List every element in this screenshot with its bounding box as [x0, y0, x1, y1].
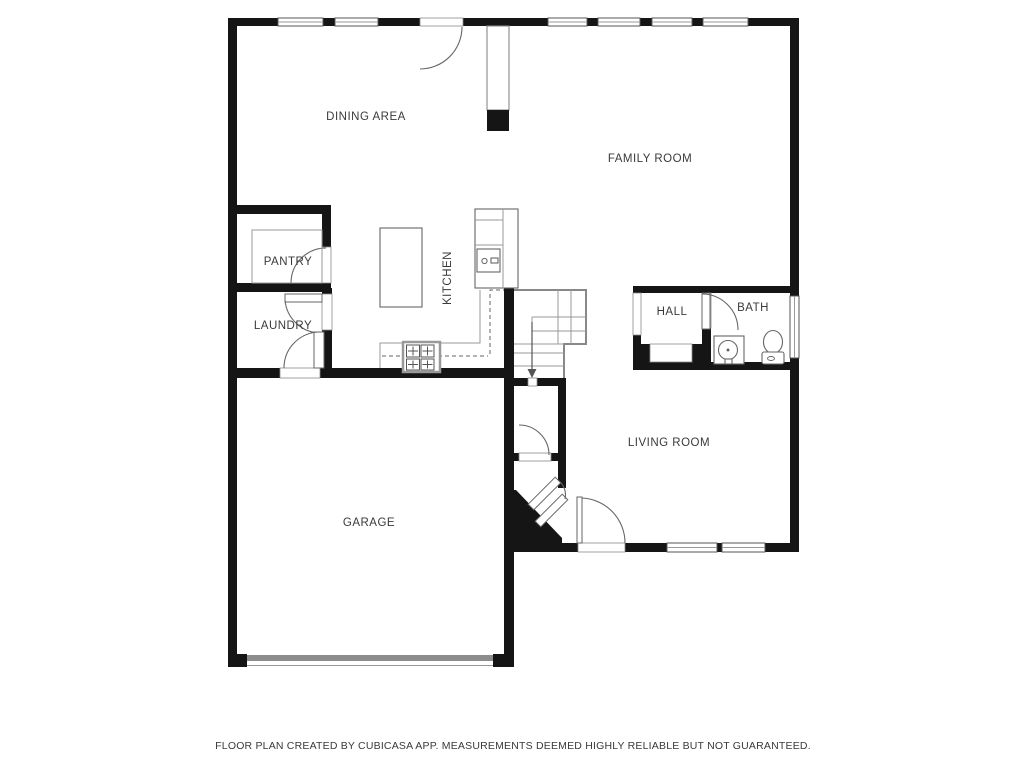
- toilet: [762, 331, 784, 365]
- room-label-living: LIVING ROOM: [628, 437, 710, 449]
- door-laundry-garage: [280, 332, 324, 378]
- window: [703, 18, 748, 26]
- room-label-garage: GARAGE: [343, 517, 395, 529]
- window: [548, 18, 587, 26]
- stove: [403, 342, 440, 372]
- room-label-bath: BATH: [737, 302, 769, 314]
- kitchen-island: [380, 228, 422, 307]
- window: [335, 18, 378, 26]
- floor-plan-drawing: DINING AREA FAMILY ROOM PANTRY KITCHEN L…: [0, 0, 1024, 768]
- door-bath: [702, 293, 738, 330]
- hall-south-opening: [650, 344, 692, 362]
- window: [790, 296, 799, 358]
- stairs-down-arrow: [528, 322, 537, 378]
- window: [652, 18, 692, 26]
- footer-disclaimer: FLOOR PLAN CREATED BY CUBICASA APP. MEAS…: [215, 740, 811, 752]
- room-label-dining: DINING AREA: [326, 111, 406, 123]
- bath-fixtures: [714, 331, 784, 365]
- room-label-pantry: PANTRY: [264, 256, 313, 268]
- room-label-kitchen: KITCHEN: [442, 251, 454, 305]
- door-top-entry: [420, 18, 463, 69]
- garage-door: [247, 655, 493, 666]
- window: [278, 18, 323, 26]
- windows: [278, 18, 799, 552]
- window: [598, 18, 640, 26]
- room-label-hall: HALL: [657, 306, 688, 318]
- door-front-living: [577, 497, 625, 552]
- room-label-family: FAMILY ROOM: [608, 153, 692, 165]
- door-entry-closet: [519, 378, 551, 461]
- floor-plan-page: DINING AREA FAMILY ROOM PANTRY KITCHEN L…: [0, 0, 1024, 768]
- room-label-laundry: LAUNDRY: [254, 320, 312, 332]
- window: [722, 543, 765, 552]
- kitchen-sink: [477, 249, 500, 272]
- stairs: [514, 290, 586, 378]
- bathroom-vanity-sink: [714, 336, 744, 364]
- window: [667, 543, 717, 552]
- hall-west-opening: [633, 293, 641, 335]
- room-divider-stub: [487, 26, 509, 110]
